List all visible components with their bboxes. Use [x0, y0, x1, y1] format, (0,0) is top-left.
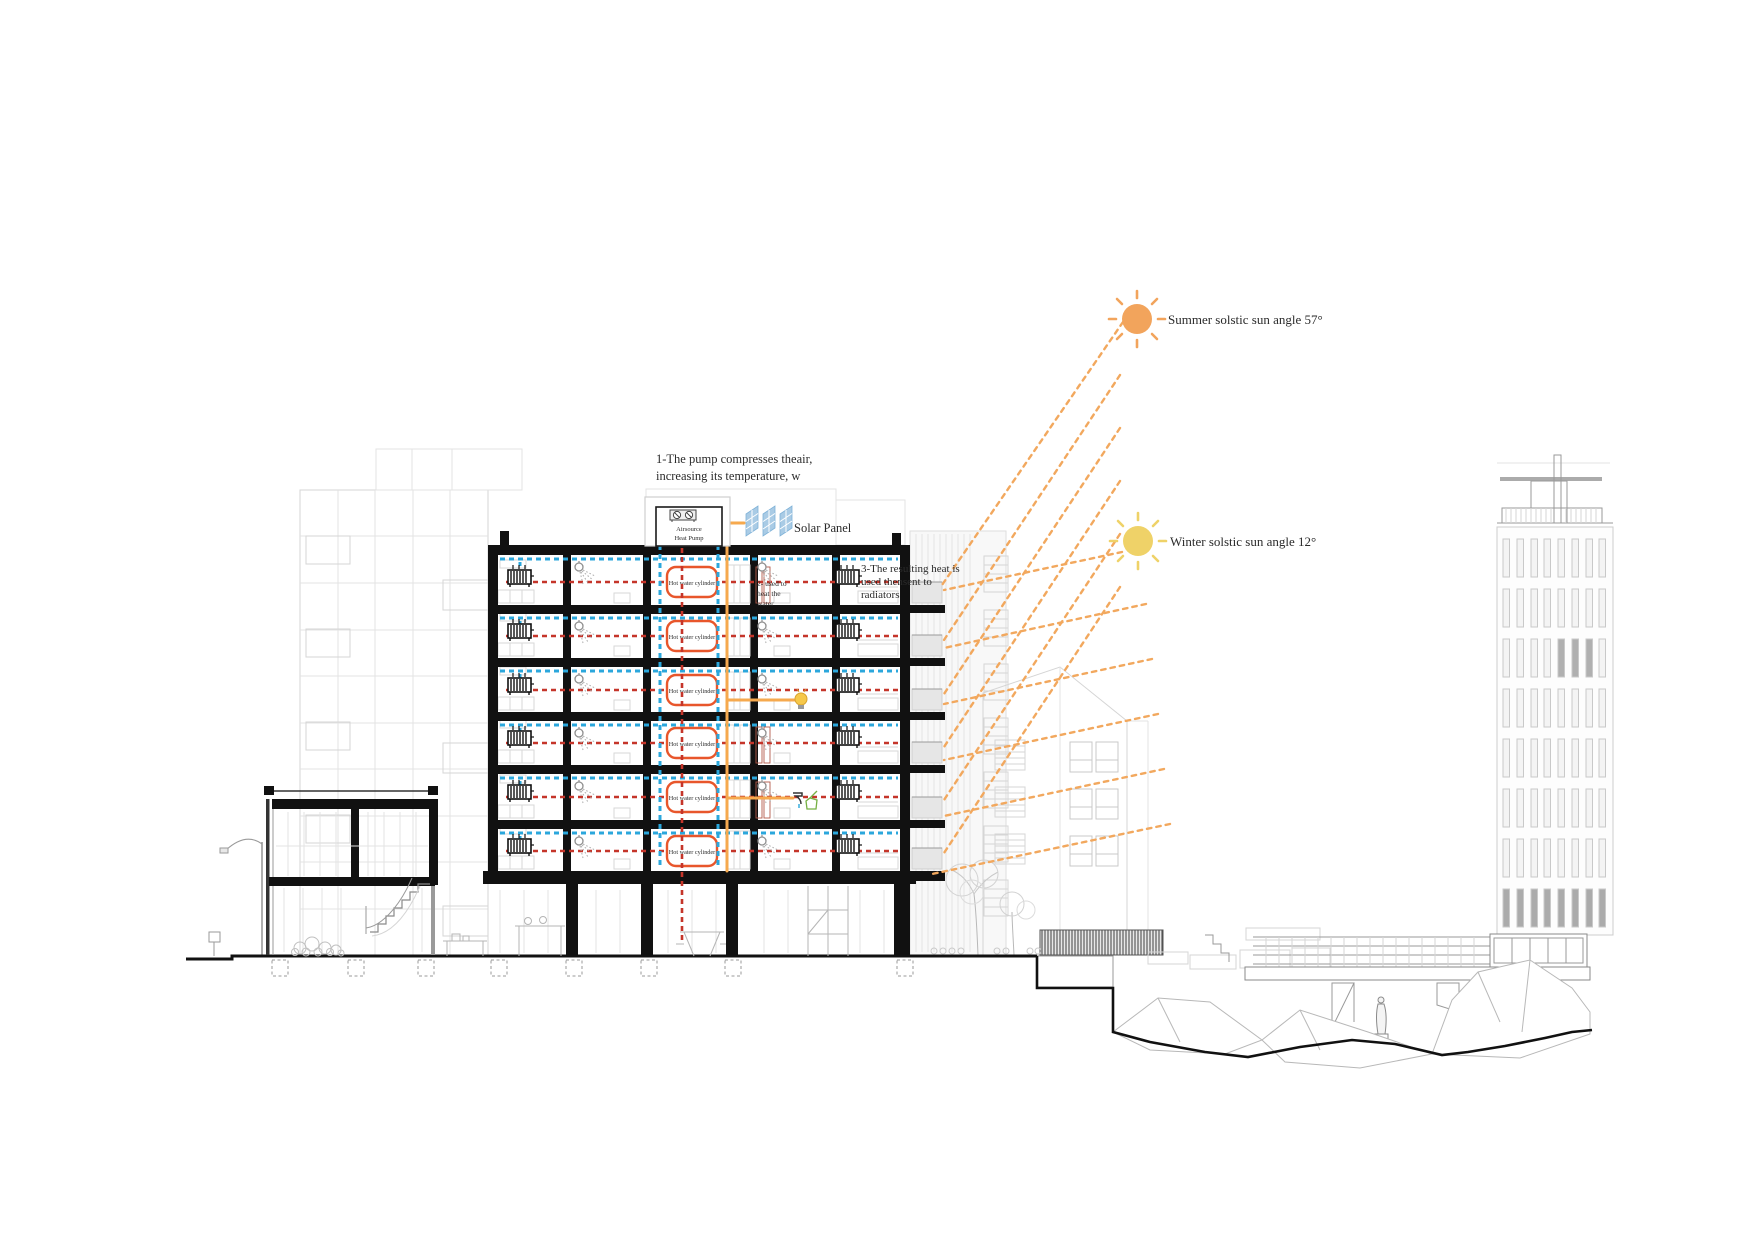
rooftop-railing — [1502, 508, 1602, 523]
hot-water-cylinder-label: Hot water cylinder — [669, 849, 715, 856]
shower-icon — [758, 727, 778, 750]
solar-supply-line — [727, 523, 744, 871]
architectural-section-page: Hot water cylinder Hot water cylinder Ho… — [0, 0, 1754, 1240]
shower-icon — [575, 561, 595, 584]
parking-meter — [209, 932, 220, 942]
heat-pump-room: Airsource Heat Pump — [645, 497, 730, 546]
right-wall — [900, 545, 910, 884]
shower-icon — [575, 780, 595, 803]
balcony-panel — [912, 742, 942, 763]
statue — [1374, 997, 1388, 1039]
slat-fence — [1040, 930, 1163, 955]
shower-icon — [758, 835, 778, 858]
ground-slab — [483, 871, 916, 884]
retaining-wall — [1037, 956, 1113, 987]
section-drawing-canvas: Hot water cylinder Hot water cylinder Ho… — [0, 0, 1754, 1240]
water-note-line3: water — [757, 599, 774, 608]
shower-icon — [758, 780, 778, 803]
pump-note-line1: 1-The pump compresses theair, — [656, 452, 812, 466]
street-lamp — [209, 839, 262, 956]
hot-water-cylinder-label: Hot water cylinder — [669, 688, 715, 695]
annex-building-section — [264, 786, 438, 956]
balcony-panel — [912, 797, 942, 818]
summer-sun-icon — [1109, 291, 1165, 347]
lightbulb-icon — [795, 689, 807, 709]
water-note-line2: heat the — [757, 589, 781, 598]
shower-icon — [758, 673, 778, 696]
shower-icon — [575, 727, 595, 750]
summer-sun-label: Summer solstic sun angle 57° — [1168, 312, 1323, 327]
winter-sun-icon — [1110, 513, 1166, 569]
hot-water-cylinder-label: Hot water cylinder — [669, 795, 715, 802]
foundation-pads — [272, 960, 913, 976]
riverbank-steps — [1205, 935, 1229, 962]
shower-icon — [575, 835, 595, 858]
stone-pile — [292, 937, 345, 956]
balcony-panel — [912, 689, 942, 710]
balcony-panel — [912, 848, 942, 869]
tap-watering-icon — [793, 791, 817, 809]
radiator-note-line3: radiators — [861, 589, 899, 601]
right-tower — [1497, 455, 1613, 935]
radiator-note-line1: 3-The resulting heat is — [861, 563, 960, 575]
bridge-parapet-block — [1490, 934, 1587, 967]
winter-sun-label: Winter solstic sun angle 12° — [1170, 534, 1316, 549]
main-building-section: Hot water cylinder Hot water cylinder Ho… — [443, 489, 945, 956]
solar-panel-label: Solar Panel — [794, 521, 852, 535]
pump-note-line2: increasing its temperature, w — [656, 469, 800, 483]
balcony-panel — [912, 635, 942, 656]
shower-icon — [575, 673, 595, 696]
radiator-note-line2: used thensent to — [861, 576, 932, 588]
hot-water-cylinder-label: Hot water cylinder — [669, 741, 715, 748]
left-wall — [488, 545, 498, 884]
compressor-icon — [670, 510, 696, 522]
stair — [366, 878, 430, 936]
hot-water-cylinder-label: Hot water cylinder — [669, 580, 715, 587]
hot-water-cylinder-label: Hot water cylinder — [669, 634, 715, 641]
solar-panel-icon — [746, 506, 792, 536]
heat-pump-label-line2: Heat Pump — [674, 535, 703, 542]
shower-icon — [758, 620, 778, 643]
balcony-railing-texture — [306, 536, 488, 936]
water-note-line1: 2- used to — [757, 579, 787, 588]
heat-pump-label-line1: Airsource — [676, 526, 702, 533]
shower-icon — [575, 620, 595, 643]
